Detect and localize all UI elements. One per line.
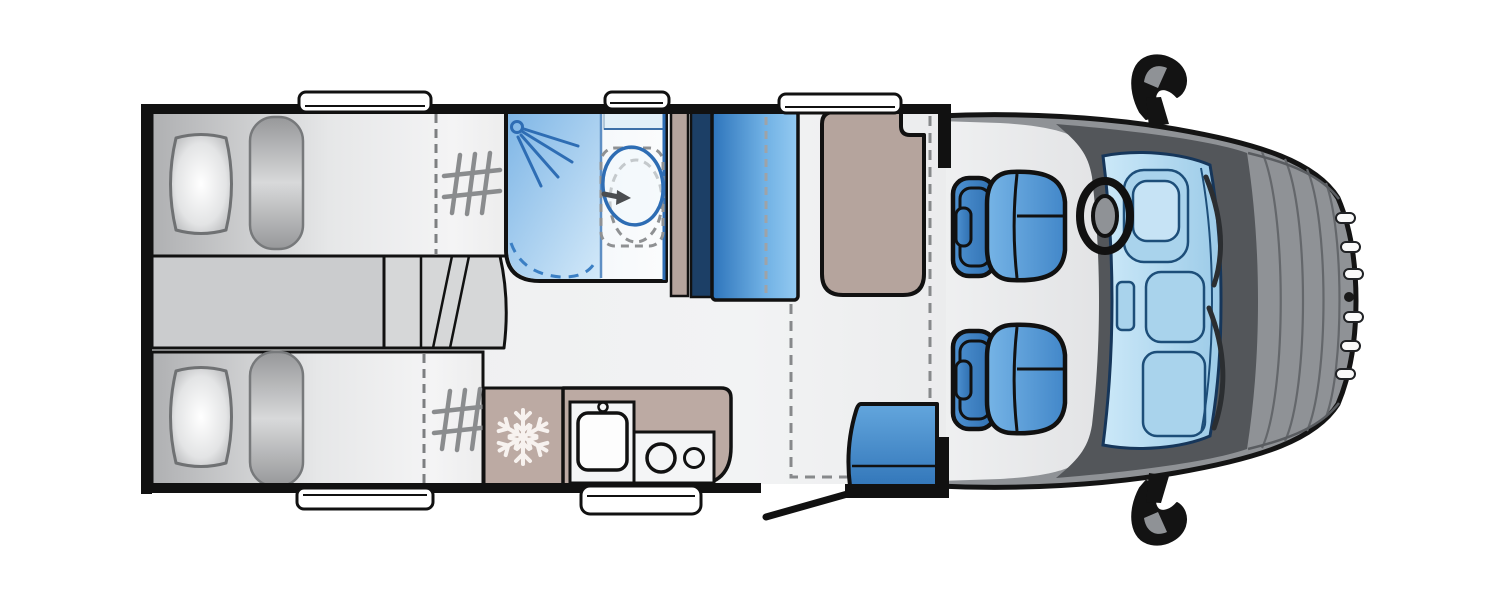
sink-bowl bbox=[578, 413, 627, 470]
pillow-bottom bbox=[171, 368, 232, 467]
bolster-top bbox=[250, 117, 303, 249]
grille-badge bbox=[1344, 292, 1354, 302]
travel-seat bbox=[848, 404, 937, 486]
pillow-top bbox=[171, 135, 232, 234]
window-kitchen-bottom bbox=[581, 486, 701, 514]
partition-wall bbox=[671, 111, 688, 296]
rear-wall bbox=[141, 104, 152, 494]
kitchen bbox=[484, 388, 731, 485]
wardrobe-side-panel bbox=[691, 111, 712, 297]
bed-steps bbox=[384, 256, 506, 348]
passenger-swivel-seat bbox=[953, 325, 1065, 434]
side-bench bbox=[822, 112, 924, 295]
window-lounge-top bbox=[779, 94, 901, 113]
bathroom bbox=[506, 111, 667, 281]
window-shower-skylight bbox=[605, 92, 669, 109]
floorplan-svg: Motorhome floor plan – top-down view, ca… bbox=[0, 0, 1500, 600]
cab-bulkhead-stub bbox=[938, 104, 951, 168]
driver-swivel-seat bbox=[953, 172, 1065, 281]
window-rear-bed-top bbox=[299, 92, 431, 112]
between-beds-floor bbox=[152, 256, 384, 348]
wardrobe-cabinet bbox=[712, 111, 798, 300]
window-rear-bed-bottom bbox=[297, 488, 433, 509]
bolster-bottom bbox=[250, 352, 303, 486]
motorhome-floorplan: Motorhome floor plan – top-down view, ca… bbox=[0, 0, 1500, 600]
wardrobe bbox=[671, 111, 798, 300]
windscreen bbox=[1103, 153, 1223, 449]
sink-tap bbox=[599, 403, 608, 412]
cassette-shelf bbox=[604, 113, 664, 129]
